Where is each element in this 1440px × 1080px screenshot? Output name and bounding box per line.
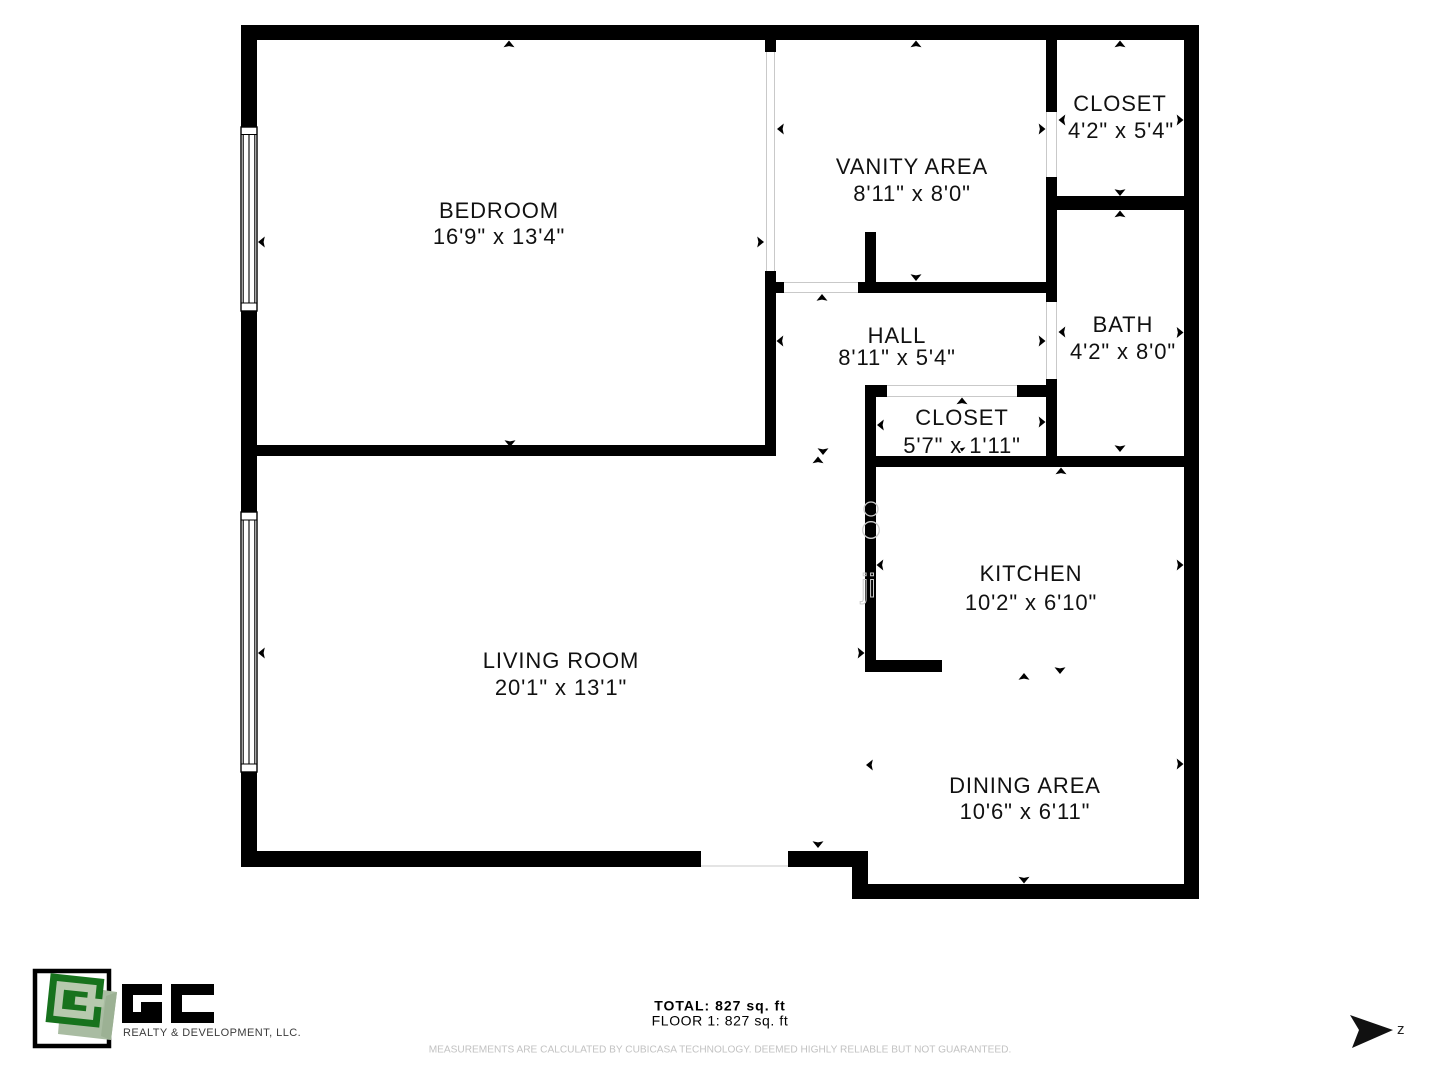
svg-text:z: z — [1397, 1021, 1405, 1038]
svg-text:KITCHEN: KITCHEN — [980, 561, 1083, 586]
svg-text:4'2" x 8'0": 4'2" x 8'0" — [1070, 339, 1176, 364]
svg-text:CLOSET: CLOSET — [1073, 91, 1166, 116]
svg-text:BATH: BATH — [1093, 312, 1154, 337]
svg-text:DINING AREA: DINING AREA — [949, 773, 1101, 798]
svg-text:4'2" x 5'4": 4'2" x 5'4" — [1068, 118, 1174, 143]
svg-text:8'11" x 8'0": 8'11" x 8'0" — [853, 181, 971, 206]
svg-text:TOTAL: 827 sq. ft: TOTAL: 827 sq. ft — [654, 998, 786, 1014]
svg-text:16'9" x 13'4": 16'9" x 13'4" — [433, 224, 565, 249]
svg-text:ji: ji — [860, 567, 876, 604]
svg-text:10'2" x 6'10": 10'2" x 6'10" — [965, 590, 1097, 615]
svg-text:MEASUREMENTS ARE CALCULATED BY: MEASUREMENTS ARE CALCULATED BY CUBICASA … — [429, 1045, 1012, 1056]
svg-text:20'1" x 13'1": 20'1" x 13'1" — [495, 675, 627, 700]
svg-text:REALTY & DEVELOPMENT, LLC.: REALTY & DEVELOPMENT, LLC. — [123, 1027, 301, 1039]
svg-text:8'11" x 5'4": 8'11" x 5'4" — [838, 345, 956, 370]
svg-text:BEDROOM: BEDROOM — [439, 198, 559, 223]
svg-text:FLOOR 1: 827 sq. ft: FLOOR 1: 827 sq. ft — [652, 1013, 789, 1029]
svg-text:10'6" x 6'11": 10'6" x 6'11" — [960, 799, 1091, 824]
svg-text:CLOSET: CLOSET — [915, 405, 1008, 430]
svg-text:LIVING ROOM: LIVING ROOM — [483, 648, 640, 673]
svg-text:5'7" x 1'11": 5'7" x 1'11" — [903, 433, 1021, 458]
svg-text:VANITY AREA: VANITY AREA — [836, 154, 988, 179]
